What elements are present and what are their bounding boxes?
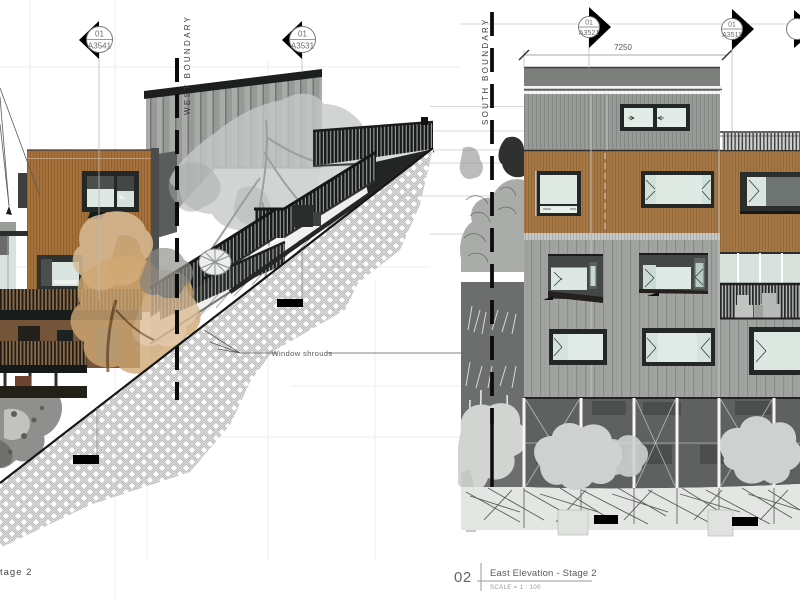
svg-text:SCALE = 1 : 100: SCALE = 1 : 100 (490, 585, 541, 591)
svg-text:A3511: A3511 (722, 32, 742, 39)
svg-text:WEST BOUNDARY: WEST BOUNDARY (183, 15, 192, 115)
svg-text:02: 02 (454, 569, 472, 586)
svg-text:A3531: A3531 (291, 42, 315, 51)
svg-text:SOUTH BOUNDARY: SOUTH BOUNDARY (481, 17, 490, 125)
svg-text:A3541: A3541 (88, 42, 112, 51)
svg-text:A3521: A3521 (579, 30, 599, 37)
svg-text:01: 01 (298, 30, 307, 39)
svg-text:tage 2: tage 2 (0, 567, 32, 578)
svg-text:7250: 7250 (614, 43, 632, 52)
svg-text:Window shrouds: Window shrouds (271, 349, 332, 358)
svg-text:01: 01 (728, 22, 736, 29)
svg-text:East Elevation - Stage 2: East Elevation - Stage 2 (490, 568, 597, 579)
svg-text:01: 01 (95, 30, 104, 39)
svg-text:01: 01 (585, 20, 593, 27)
